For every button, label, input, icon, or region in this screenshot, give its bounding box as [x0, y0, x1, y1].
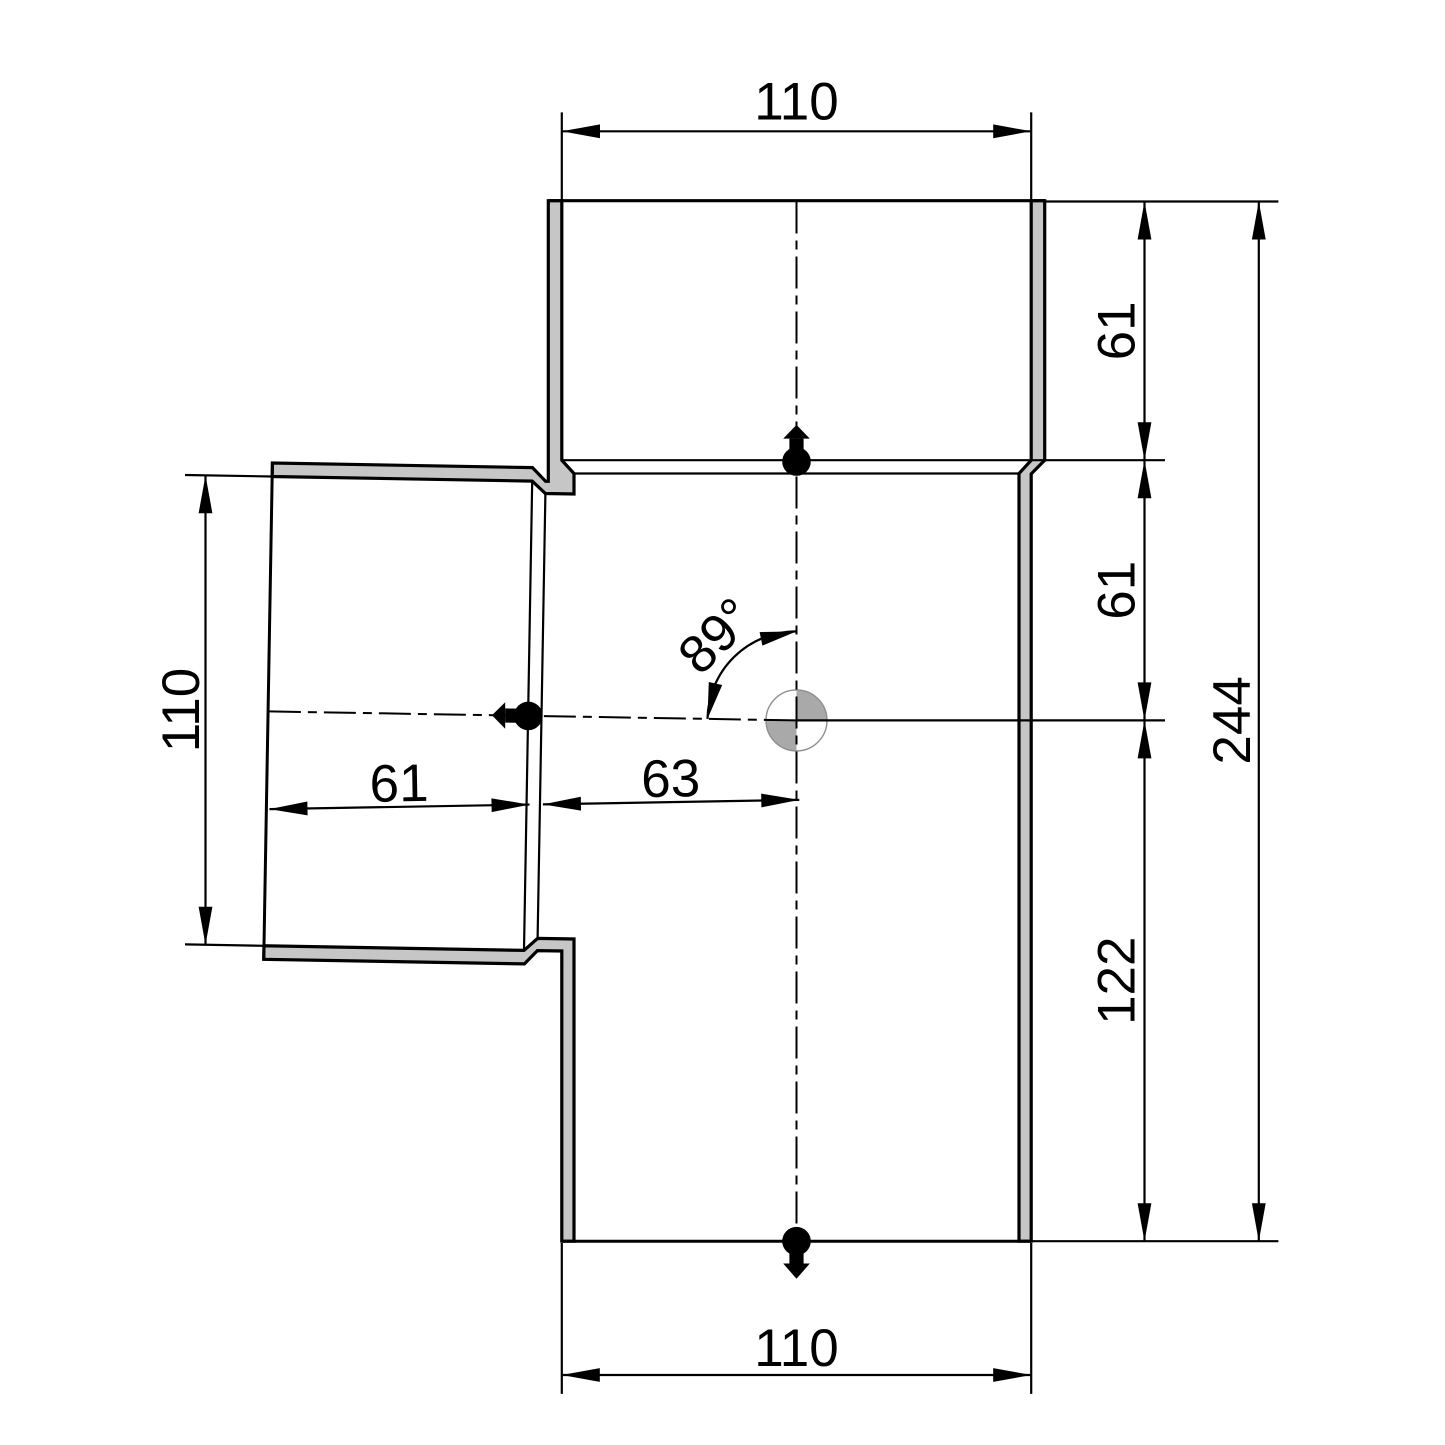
svg-text:61: 61 [1088, 561, 1147, 620]
svg-text:122: 122 [1088, 936, 1147, 1024]
svg-text:110: 110 [754, 73, 839, 132]
svg-text:110: 110 [754, 1319, 839, 1378]
svg-text:63: 63 [641, 749, 701, 809]
svg-text:110: 110 [152, 668, 211, 753]
svg-text:244: 244 [1203, 676, 1262, 764]
svg-text:61: 61 [369, 754, 429, 814]
svg-text:61: 61 [1088, 301, 1147, 360]
